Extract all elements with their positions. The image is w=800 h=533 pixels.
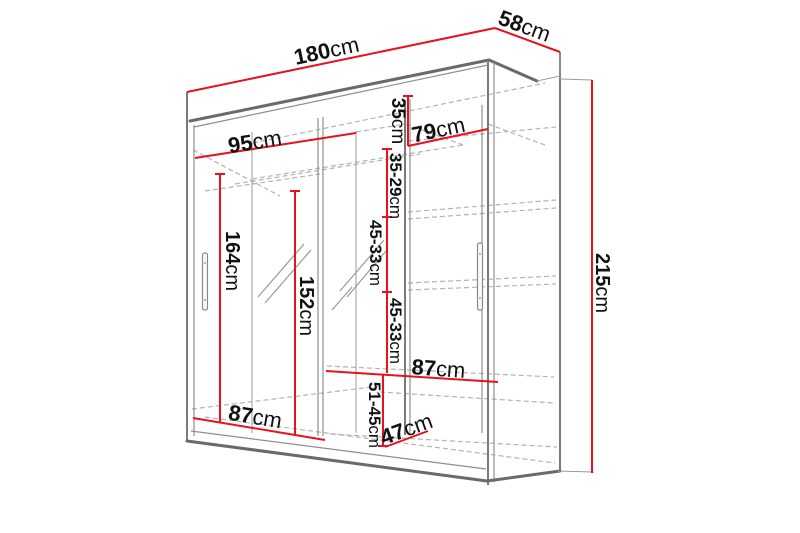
dim-label-gap1: 35-29cm — [386, 153, 405, 219]
dim-label-height: 215cm — [591, 253, 613, 313]
dim-label-top-shelf: 35cm — [387, 98, 408, 144]
wardrobe-dimension-diagram: 180cm 58cm 215cm 95cm 79cm 35cm 35-29cm … — [0, 0, 800, 533]
top-slab-front-edge — [190, 60, 489, 121]
dim-label-depth: 58cm — [495, 5, 554, 47]
dim-label-door-right: 79cm — [410, 112, 468, 148]
dim-label-hang-left: 164cm — [221, 231, 243, 291]
diagram-canvas: 180cm 58cm 215cm 95cm 79cm 35cm 35-29cm … — [0, 0, 800, 533]
plinth-line — [191, 431, 486, 469]
dim-label-hang-mid: 152cm — [295, 276, 317, 336]
dim-label-gap2: 45-33cm — [366, 220, 385, 286]
dim-label-gap3: 45-33cm — [386, 298, 405, 364]
dim-label-door-left: 95cm — [226, 125, 283, 158]
dim-label-shelf-left: 87cm — [227, 400, 284, 434]
top-slab-right-edge — [489, 60, 537, 81]
bottom-front-edge — [187, 441, 487, 481]
bottom-right-edge — [487, 471, 560, 481]
dim-label-shelf-mid: 87cm — [411, 354, 466, 383]
extension-lines — [557, 52, 594, 472]
door-handle-left — [203, 253, 208, 310]
door-handle-right — [478, 243, 483, 310]
